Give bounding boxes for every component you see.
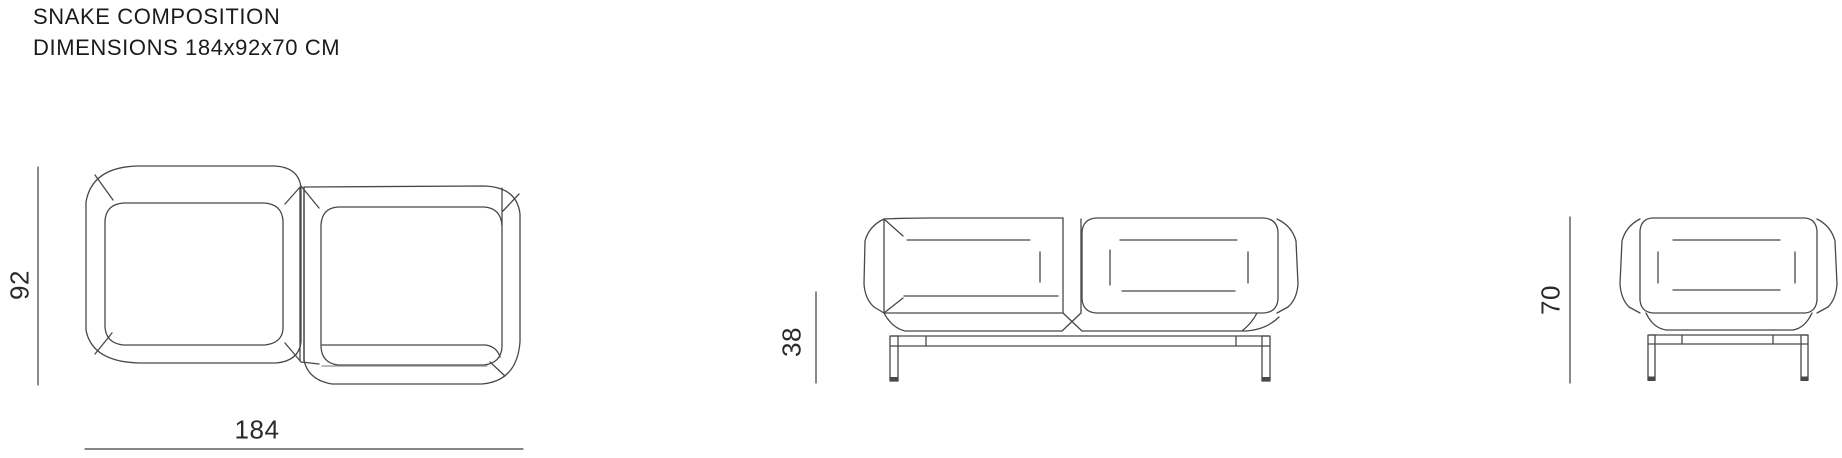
side-view-skirt <box>1646 313 1812 330</box>
top-view-left-module-inner <box>105 203 283 345</box>
side-view-feet <box>1648 377 1809 382</box>
side-view-drawing <box>1620 218 1837 381</box>
side-view-base-rail <box>1649 335 1808 344</box>
front-view-left-leg <box>890 336 898 381</box>
top-view-drawing <box>86 166 520 384</box>
front-view-feet <box>890 377 1271 382</box>
top-view-left-module-outer <box>86 166 301 363</box>
side-view-body <box>1640 218 1817 313</box>
front-view-right-skirt <box>1082 313 1279 331</box>
dimension-label-height: 70 <box>1536 285 1567 315</box>
technical-drawing-canvas <box>0 0 1842 458</box>
top-view-right-module-outer <box>304 186 520 384</box>
side-view-left-leg <box>1648 335 1655 380</box>
front-view-right-leg <box>1262 336 1270 381</box>
side-view-right-leg <box>1801 335 1808 380</box>
dimension-label-width: 184 <box>235 415 280 446</box>
dimension-lines <box>38 167 1570 449</box>
front-view-left-module <box>884 218 1063 331</box>
front-view-junction <box>1062 218 1082 331</box>
dimension-label-seat-height: 38 <box>777 327 808 357</box>
front-view-drawing <box>864 218 1298 382</box>
top-view-right-module-inner <box>321 207 502 365</box>
front-view-right-module-inner <box>1110 240 1248 291</box>
top-view-left-module-creases <box>95 175 113 354</box>
side-view-inner-lines <box>1658 240 1795 290</box>
top-view-junction <box>285 186 319 364</box>
top-view-right-module-seat-line <box>322 345 500 357</box>
side-view-left-cap <box>1620 219 1640 313</box>
dimension-label-depth: 92 <box>5 270 36 300</box>
front-view-left-arm <box>864 219 903 313</box>
side-view-right-cap <box>1817 219 1837 313</box>
page-root: SNAKE COMPOSITION DIMENSIONS 184x92x70 C… <box>0 0 1842 458</box>
front-view-base-rail <box>891 336 1269 346</box>
front-view-right-arm <box>1277 219 1298 313</box>
